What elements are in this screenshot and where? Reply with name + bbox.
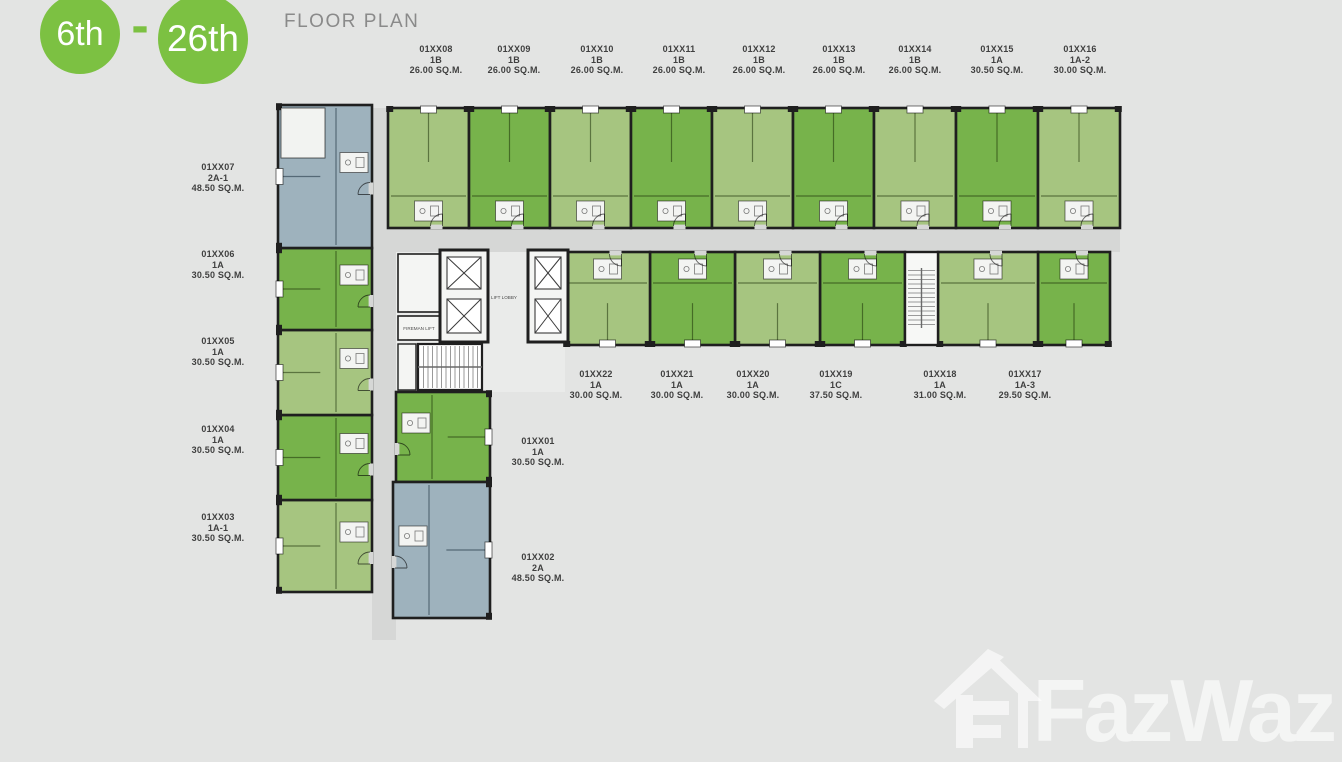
unit-01XX10: [548, 106, 633, 229]
brand-house-icon: [934, 643, 1044, 748]
unit-01XX06: [276, 246, 373, 332]
unit-01XX04: [276, 413, 373, 502]
unit-01XX21: [648, 251, 737, 347]
unit-01XX20: [733, 251, 822, 347]
floor-plan-drawing: FIREMAN LIFTLIFT LOBBY: [0, 0, 1342, 754]
unit-01XX18: [936, 251, 1040, 347]
unit-01XX16: [1036, 106, 1122, 229]
unit-01XX22: [563, 251, 652, 347]
unit-01XX12: [710, 106, 795, 229]
unit-01XX11: [629, 106, 714, 229]
unit-01XX03: [276, 498, 373, 594]
unit-01XX08: [386, 106, 471, 229]
fireman-lift-label: FIREMAN LIFT: [403, 326, 435, 331]
floor-plan-page: 6th - 26th FLOOR PLAN FIREMAN LIFTLIFT L…: [0, 0, 1342, 754]
lift-lobby-label: LIFT LOBBY: [491, 295, 517, 300]
corridor-horizontal: [372, 228, 1120, 252]
utility-room: [281, 108, 325, 158]
unit-01XX02: [392, 480, 492, 620]
unit-01XX13: [791, 106, 876, 229]
brand-text: FazWaz: [1033, 660, 1334, 762]
unit-01XX09: [467, 106, 552, 229]
corridor-gap: [372, 108, 388, 228]
service-room: [398, 254, 440, 312]
unit-01XX17: [1036, 251, 1112, 347]
unit-01XX01: [395, 390, 492, 484]
unit-01XX14: [872, 106, 958, 229]
unit-01XX19: [818, 251, 907, 347]
unit-01XX15: [954, 106, 1040, 229]
unit-01XX05: [276, 328, 373, 417]
stair-landing: [398, 344, 416, 390]
